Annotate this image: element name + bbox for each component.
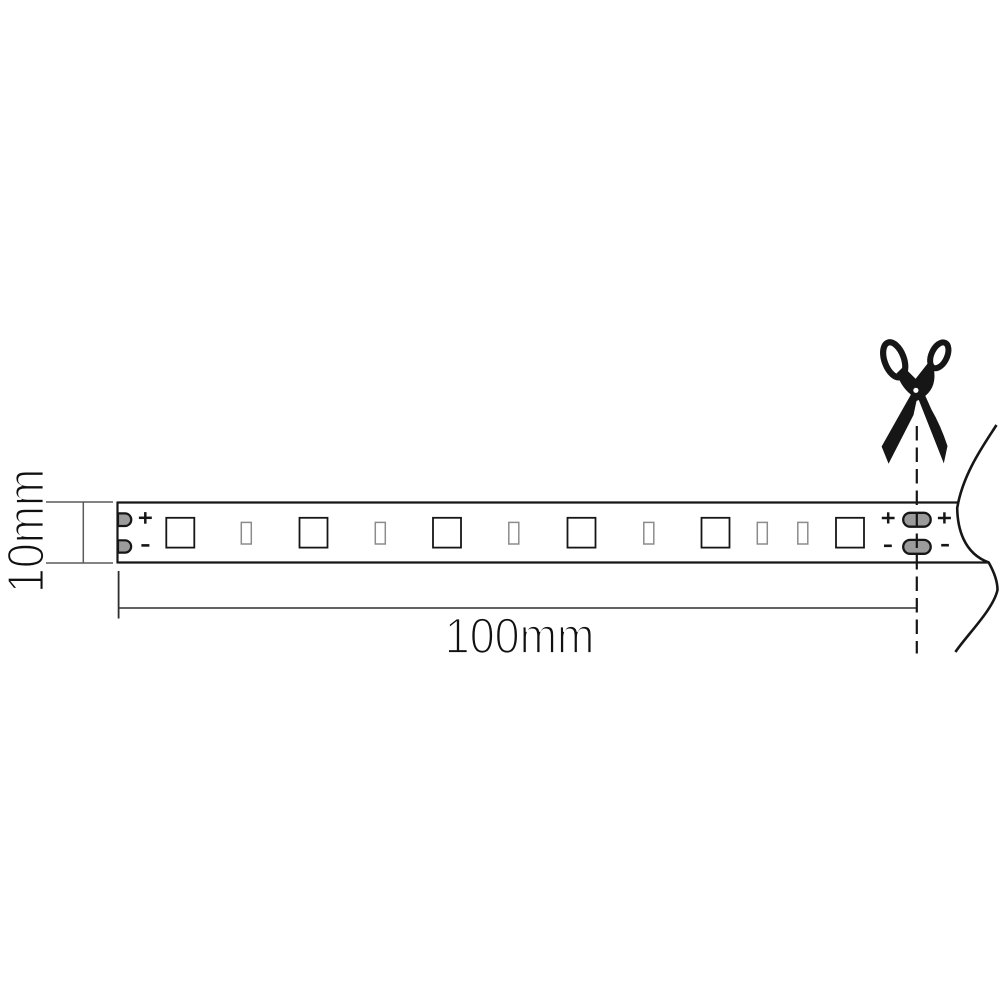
svg-text:10mm: 10mm: [0, 469, 55, 593]
svg-text:100mm: 100mm: [445, 608, 595, 664]
